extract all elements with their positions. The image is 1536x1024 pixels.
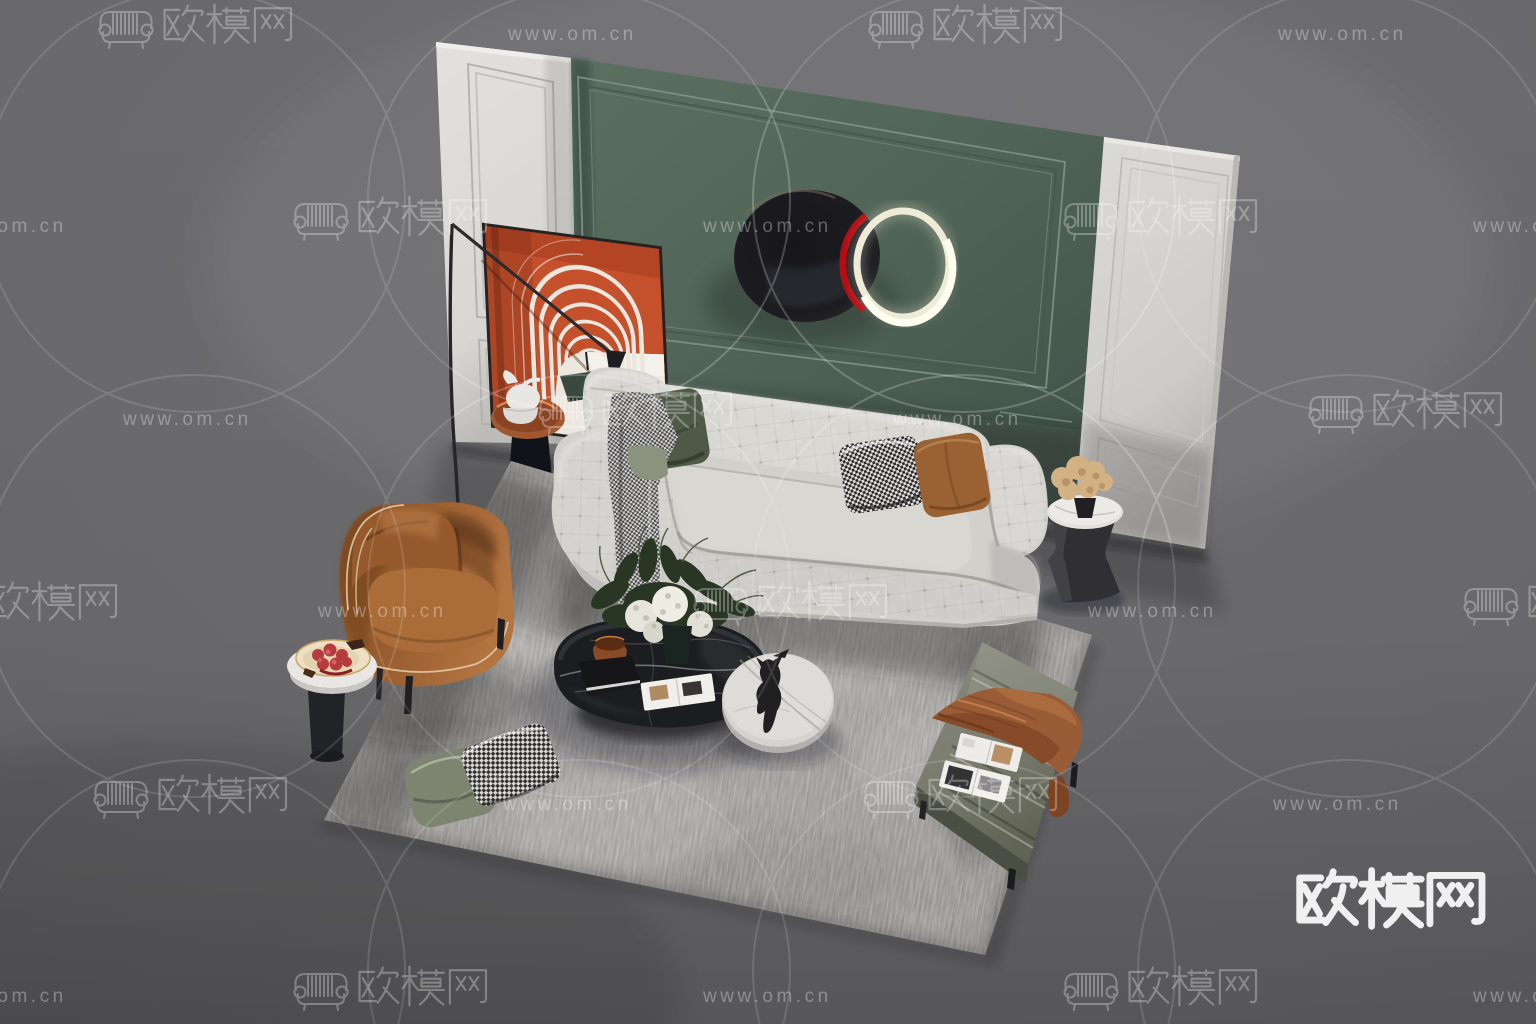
svg-text:www.om.cn: www.om.cn: [1277, 24, 1407, 45]
svg-text:www.om.cn: www.om.cn: [1087, 601, 1217, 622]
svg-text:www.om.cn: www.om.cn: [0, 216, 67, 237]
svg-text:www.om.cn: www.om.cn: [702, 216, 832, 237]
svg-text:www.om.cn: www.om.cn: [1272, 794, 1402, 815]
svg-text:www.om.cn: www.om.cn: [1472, 216, 1536, 237]
svg-text:www.om.cn: www.om.cn: [317, 601, 447, 622]
svg-text:www.om.cn: www.om.cn: [507, 24, 637, 45]
svg-text:www.om.cn: www.om.cn: [0, 986, 67, 1007]
svg-text:www.om.cn: www.om.cn: [1472, 986, 1536, 1007]
svg-text:www.om.cn: www.om.cn: [502, 794, 632, 815]
svg-text:www.om.cn: www.om.cn: [892, 409, 1022, 430]
svg-text:www.om.cn: www.om.cn: [122, 409, 252, 430]
svg-text:www.om.cn: www.om.cn: [702, 986, 832, 1007]
